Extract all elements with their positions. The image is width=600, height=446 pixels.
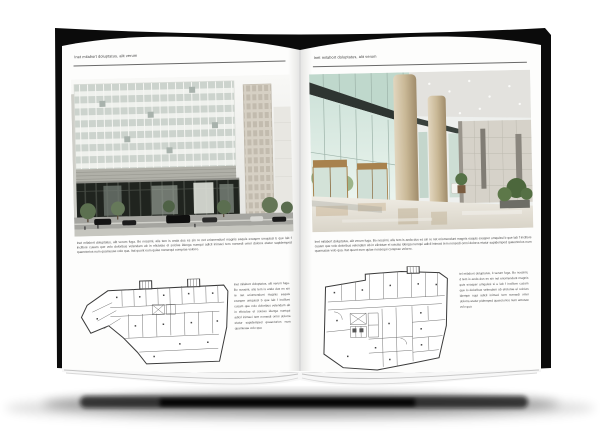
right-floor-plan [315, 265, 455, 380]
right-page-body-text: Inet milabort doluptatus, alit verum fug… [315, 236, 532, 254]
left-page-content: Inet milabort doluptatus, alit verum [70, 46, 297, 377]
left-plan-side-text: Inet milabort doluptatus, alit verum fug… [234, 281, 291, 332]
left-page-body-text: Inet milabort doluptatus, alit verum fug… [77, 236, 292, 255]
left-floor-plan [78, 278, 232, 375]
lobby-interior-photo [309, 70, 533, 233]
left-page-header: Inet milabort doluptatus, alit verum [74, 54, 137, 59]
office-building-exterior-photo [71, 74, 294, 236]
left-header-rule [74, 61, 286, 67]
right-page-content: Inet milabort doluptatus, alit verum [309, 44, 537, 383]
book-shadow [5, 393, 595, 422]
book-mockup-scene: Inet milabort doluptatus, alit verum [0, 0, 600, 446]
right-page-header: Inet milabort doluptatus, alit verum [314, 55, 377, 60]
right-plan-side-text: tel milabort doluptatus, it verum fuga. … [459, 270, 529, 310]
right-header-rule [313, 62, 527, 67]
